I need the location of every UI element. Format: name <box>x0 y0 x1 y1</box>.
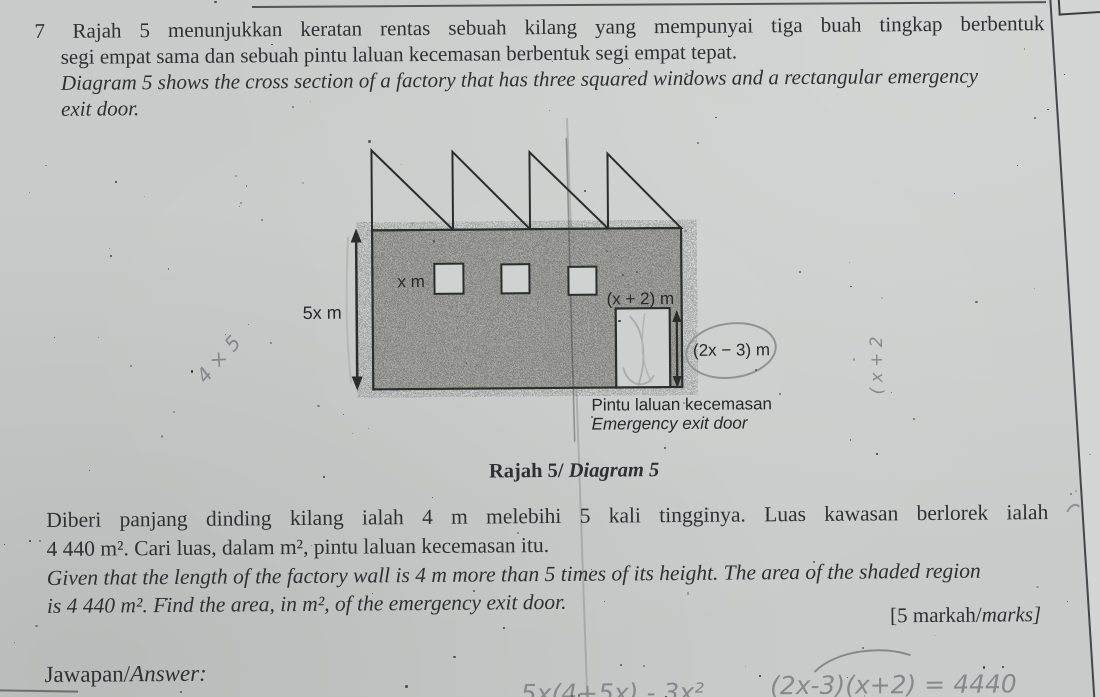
label-wall-height: 5x m <box>303 303 342 323</box>
answer-label-malay: Jawapan/ <box>44 661 130 687</box>
handwritten-working-right: (2x-3)(x+2) = 4440 <box>770 669 1017 697</box>
label-door-caption-malay: Pintu laluan kecemasan <box>591 394 772 414</box>
question-number: 7 <box>34 18 45 44</box>
handwritten-working-left: 5x(4+5x) - 3x² <box>521 678 705 697</box>
window-1 <box>434 264 463 294</box>
caption-malay: Rajah 5/ <box>489 460 564 483</box>
answer-label: Jawapan/Answer: <box>44 661 206 688</box>
label-door-caption-english: Emergency exit door <box>592 413 749 433</box>
roof-triangle-2 <box>452 151 530 230</box>
roof-triangle-4 <box>607 153 681 229</box>
question-statement: 7 Rajah 5 menunjukkan keratan rentas seb… <box>34 10 1047 122</box>
pencil-tick-margin <box>1067 505 1079 512</box>
page-content: 7 Rajah 5 menunjukkan keratan rentas seb… <box>0 0 1100 697</box>
caption-english: Diagram 5 <box>563 459 659 482</box>
label-door-height: (2x − 3) m <box>693 340 770 360</box>
handwritten-working: 5x(4+5x) - 3x² (2x-3)(x+2) = 4440 <box>521 669 1017 697</box>
wall-height-arrow <box>351 228 363 390</box>
handwritten-vertical-note: ( x + 2 <box>867 320 888 410</box>
marks-malay: [5 markah/ <box>890 603 982 628</box>
pencil-stroke-near-arrow <box>346 237 351 384</box>
window-3 <box>568 267 596 295</box>
answer-label-english: Answer: <box>130 661 207 687</box>
window-2 <box>501 264 529 293</box>
marks-english: marks] <box>982 602 1042 626</box>
label-door-width: (x + 2) m <box>607 289 675 309</box>
label-window-size: x m <box>397 272 425 291</box>
factory-cross-section-diagram: x m 5x m (x + 2) m (2x − 3) m Pintu lalu… <box>288 134 810 444</box>
scanned-exam-page: 7 Rajah 5 menunjukkan keratan rentas seb… <box>0 0 1100 697</box>
handwritten-diagonal-note: 4 × 5 <box>191 331 245 388</box>
diagram-caption: Rajah 5/ Diagram 5 <box>489 459 659 483</box>
pencil-arc-above-working <box>814 650 910 672</box>
roof-triangle-1 <box>371 150 453 231</box>
marks-allocation: [5 markah/marks] <box>890 602 1041 628</box>
